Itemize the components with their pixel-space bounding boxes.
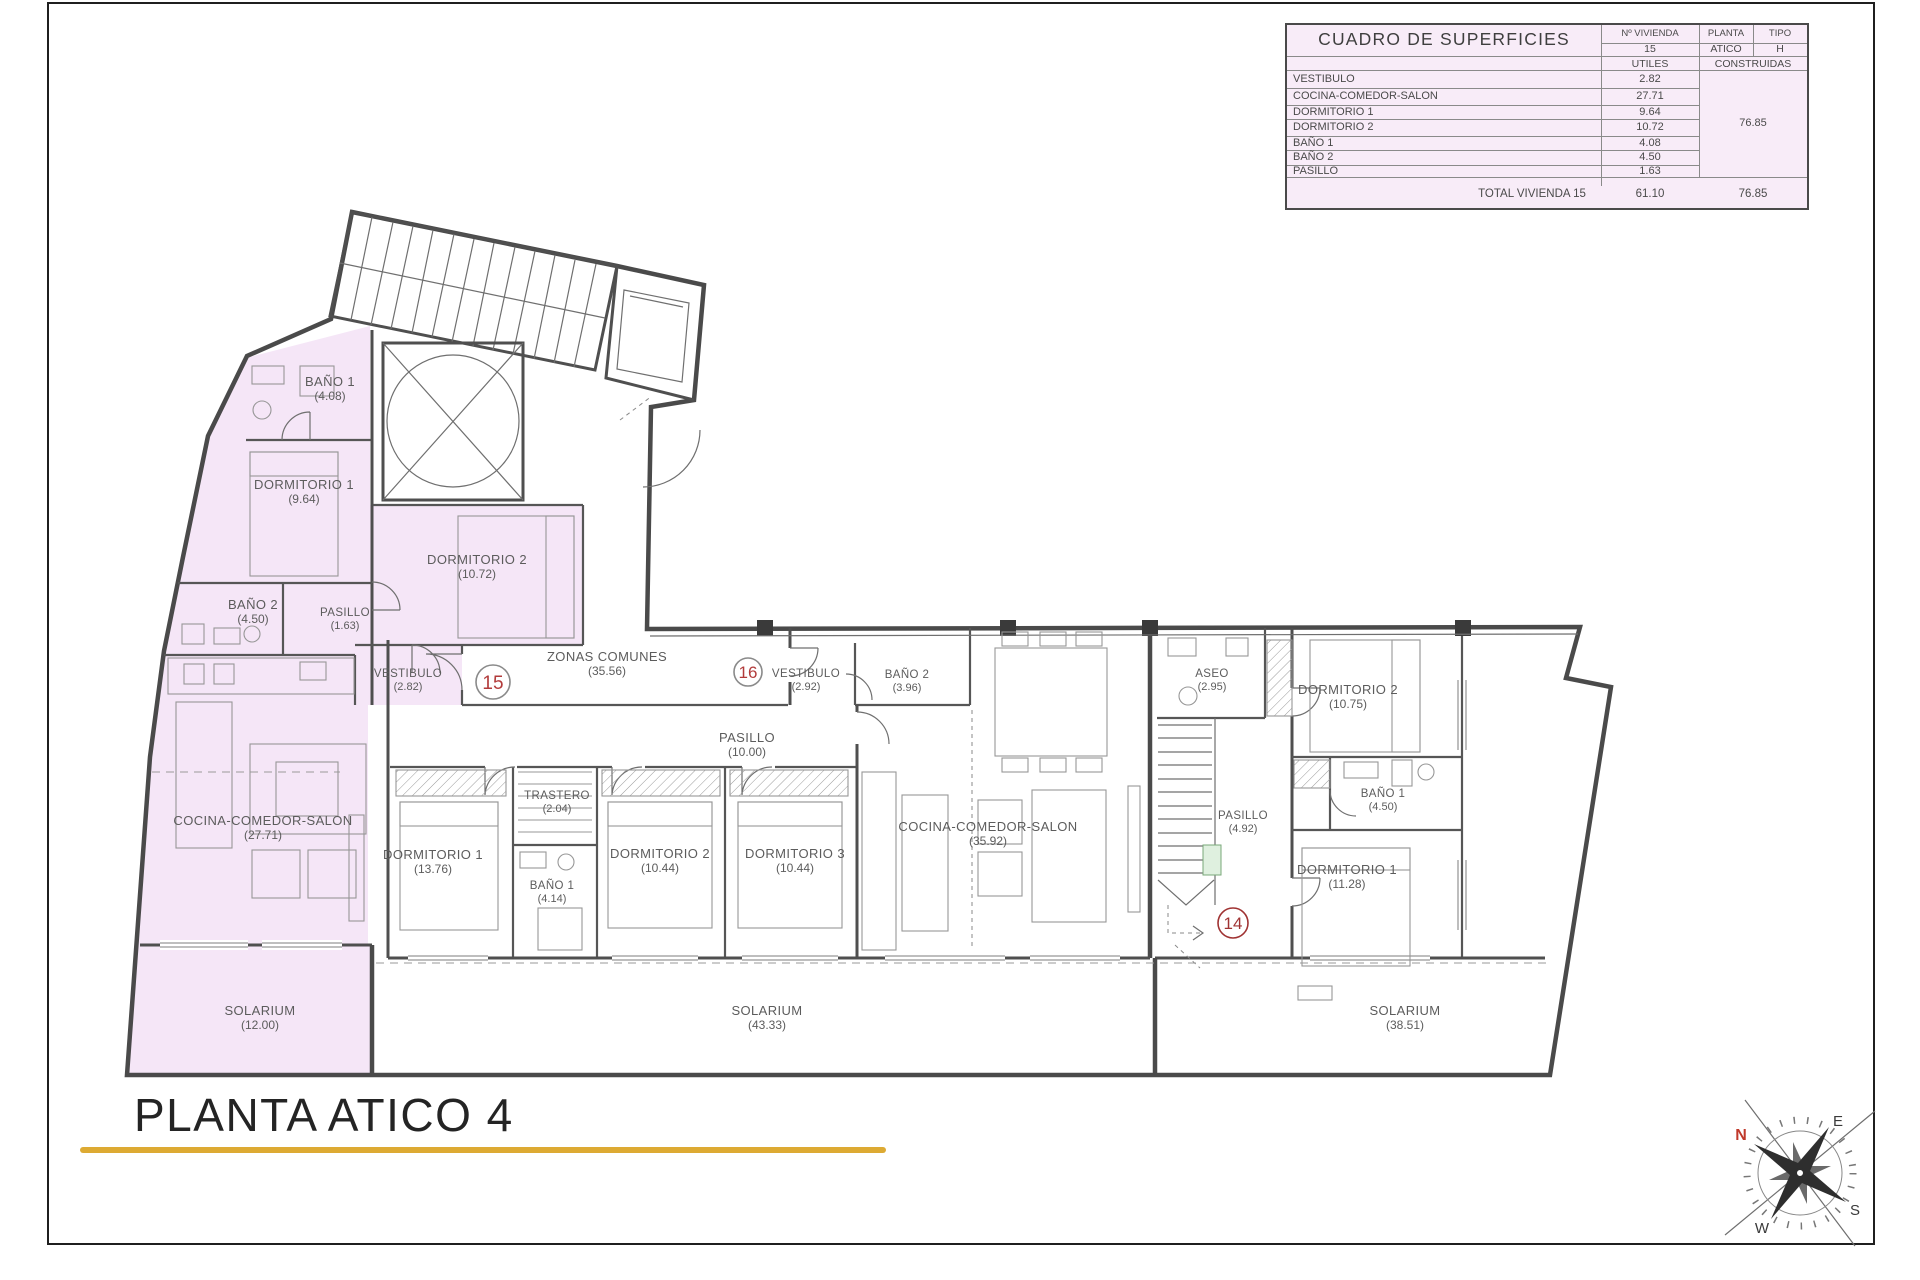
title-underline: [80, 1147, 886, 1153]
room-label: COCINA-COMEDOR-SALON: [898, 819, 1077, 834]
row-name: BAÑO 2: [1293, 151, 1333, 163]
room-area: (3.96): [893, 682, 922, 694]
room-label: DORMITORIO 2: [427, 552, 527, 567]
unit-tipo: H: [1776, 43, 1784, 55]
header-construidas: CONSTRUIDAS: [1715, 58, 1791, 70]
row-utiles: 27.71: [1636, 90, 1664, 102]
room-label: DORMITORIO 2: [1298, 682, 1398, 697]
row-name: PASILLO: [1293, 165, 1338, 177]
row-name: BAÑO 1: [1293, 137, 1333, 149]
room-area: (4.50): [1369, 801, 1398, 813]
construidas-total: 76.85: [1739, 117, 1767, 129]
room-area: (10.44): [641, 861, 679, 875]
room-label: BAÑO 1: [530, 879, 575, 892]
row-utiles: 10.72: [1636, 121, 1664, 133]
col-header-vivienda: Nº VIVIENDA: [1621, 28, 1678, 39]
badge-15: 15: [482, 673, 503, 694]
room-area: (1.63): [331, 620, 360, 632]
room-label: PASILLO: [1218, 810, 1268, 822]
compass-west: W: [1755, 1220, 1770, 1237]
compass-north: N: [1735, 1127, 1747, 1144]
room-area: (13.76): [414, 862, 452, 876]
room-area: (38.51): [1386, 1018, 1424, 1032]
room-area: (2.82): [394, 681, 423, 693]
room-label: ASEO: [1195, 668, 1229, 680]
room-label: TRASTERO: [524, 790, 590, 802]
col-header-tipo: TIPO: [1769, 28, 1791, 39]
elevator: [606, 266, 694, 420]
compass-east: E: [1833, 1113, 1843, 1130]
table-title: CUADRO DE SUPERFICIES: [1287, 29, 1601, 50]
room-label: BAÑO 1: [1361, 787, 1406, 800]
room-label: DORMITORIO 3: [745, 846, 845, 861]
page-title: PLANTA ATICO 4: [134, 1088, 514, 1142]
unit14-labels: ASEO (2.95) DORMITORIO 2 (10.75) BAÑO 1 …: [1195, 668, 1440, 1032]
room-area: (2.92): [792, 681, 821, 693]
room-area: (12.00): [241, 1018, 279, 1032]
room-area: (35.92): [969, 834, 1007, 848]
row-utiles: 4.08: [1639, 137, 1660, 149]
room-label: BAÑO 2: [885, 668, 930, 681]
badge-16: 16: [739, 663, 758, 682]
row-utiles: 4.50: [1639, 151, 1660, 163]
room-label: BAÑO 1: [305, 374, 355, 389]
zonas-comunes-area: (35.56): [588, 664, 626, 678]
unit-vivienda: 15: [1644, 43, 1656, 55]
room-label: VESTIBULO: [772, 668, 840, 680]
row-utiles: 1.63: [1639, 165, 1660, 177]
unit-planta: ATICO: [1710, 43, 1741, 55]
room-area: (9.64): [288, 492, 319, 506]
room-label: DORMITORIO 1: [383, 847, 483, 862]
room-area: (4.14): [538, 893, 567, 905]
room-area: (2.04): [543, 803, 572, 815]
room-label: DORMITORIO 1: [1297, 862, 1397, 877]
room-area: (27.71): [244, 828, 282, 842]
compass-rose-icon: N E S W: [1725, 1100, 1875, 1246]
row-name: COCINA-COMEDOR-SALON: [1293, 90, 1438, 102]
room-area: (43.33): [748, 1018, 786, 1032]
room-label: PASILLO: [320, 607, 370, 619]
room-label: SOLARIUM: [224, 1003, 295, 1018]
room-label: SOLARIUM: [731, 1003, 802, 1018]
header-utiles: UTILES: [1632, 58, 1669, 70]
room-area: (4.92): [1229, 823, 1258, 835]
room-label: COCINA-COMEDOR-SALON: [173, 813, 352, 828]
col-header-planta: PLANTA: [1708, 28, 1744, 39]
room-label: BAÑO 2: [228, 597, 278, 612]
room-area: (2.95): [1198, 681, 1227, 693]
room-area: (10.75): [1329, 697, 1367, 711]
room-area: (10.00): [728, 745, 766, 759]
room-label: SOLARIUM: [1369, 1003, 1440, 1018]
room-label: DORMITORIO 2: [610, 846, 710, 861]
room-area: (4.50): [237, 612, 268, 626]
row-name: DORMITORIO 2: [1293, 121, 1373, 133]
room-label: PASILLO: [719, 730, 775, 745]
zonas-comunes-label: ZONAS COMUNES: [547, 649, 667, 664]
room-label: VESTIBULO: [374, 668, 442, 680]
badge-14: 14: [1224, 914, 1243, 933]
room-label: DORMITORIO 1: [254, 477, 354, 492]
row-utiles: 2.82: [1639, 73, 1660, 85]
room-area: (11.28): [1328, 877, 1365, 891]
compass-south: S: [1850, 1202, 1860, 1219]
row-name: VESTIBULO: [1293, 73, 1355, 85]
total-construidas: 76.85: [1739, 188, 1768, 200]
room-area: (4.08): [314, 389, 345, 403]
row-name: DORMITORIO 1: [1293, 106, 1373, 118]
total-utiles: 61.10: [1636, 188, 1665, 200]
surfaces-table: CUADRO DE SUPERFICIES Nº VIVIENDA PLANTA…: [1285, 23, 1809, 210]
plan-sheet: 15 16 14 BAÑO 1 (4.08) DORMITORIO 1 (9.6…: [0, 0, 1920, 1280]
unit16-labels: VESTIBULO (2.92) BAÑO 2 (3.96) PASILLO (…: [383, 668, 1078, 1032]
total-label: TOTAL VIVIENDA 15: [1478, 188, 1586, 200]
room-area: (10.44): [776, 861, 814, 875]
room-area: (10.72): [458, 567, 496, 581]
row-utiles: 9.64: [1639, 106, 1660, 118]
